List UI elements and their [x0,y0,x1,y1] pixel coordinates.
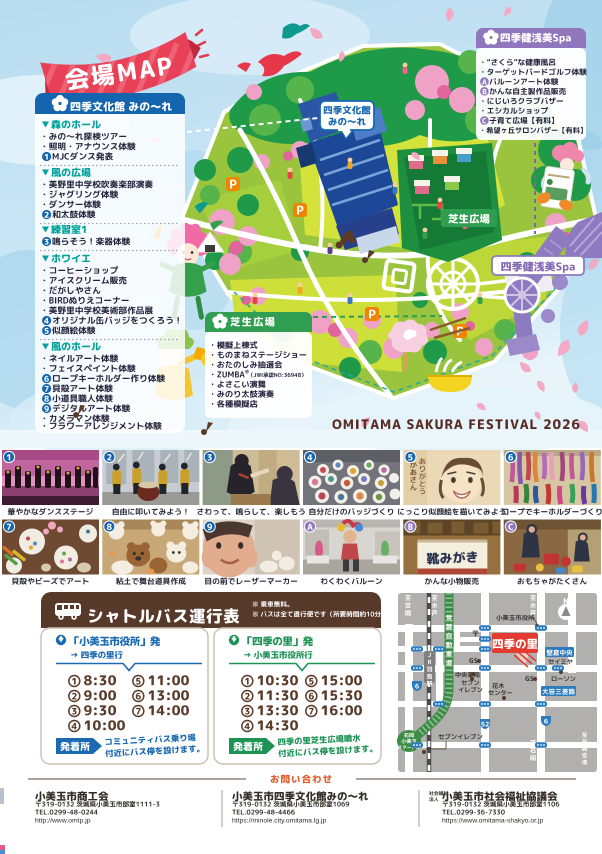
svg-text:https://www.omitama-shakyo.or.: https://www.omitama-shakyo.or.jp [442,818,543,825]
svg-text:https://minole.city.omitama.lg: https://minole.city.omitama.lg.jp [232,818,327,825]
svg-text:http://www.omtp.jp: http://www.omtp.jp [35,818,91,825]
